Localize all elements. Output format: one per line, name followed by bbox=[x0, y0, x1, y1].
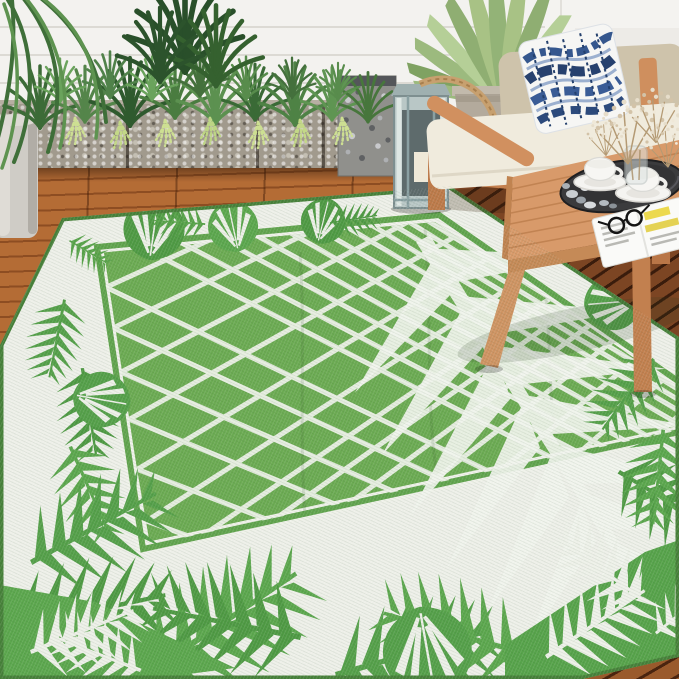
glass-vase bbox=[625, 146, 647, 184]
scene-art bbox=[0, 0, 679, 679]
patio-scene bbox=[0, 0, 679, 679]
floor-pot bbox=[0, 114, 38, 238]
dangling-strands bbox=[66, 118, 352, 148]
